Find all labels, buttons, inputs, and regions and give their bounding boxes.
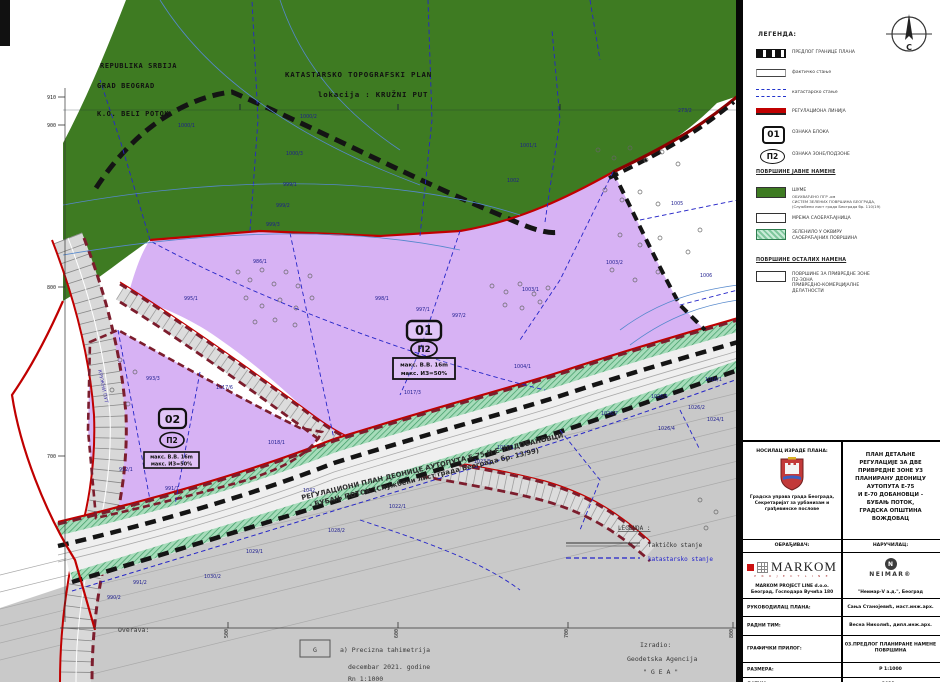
zone-02-max-height: макс. В.В. 16m — [150, 455, 193, 461]
legend-item-label: ШУМЕ — [792, 188, 806, 194]
plan-sheet: 910900800700500600700800 1000/11000/2100… — [0, 0, 940, 682]
lead-value: Сања Станојевић, маст.инж.арх. — [842, 604, 939, 610]
markom-name: MARKOM — [771, 559, 837, 575]
green-hatch-swatch — [756, 229, 786, 240]
title-block-row-scale: РАЗМЕРА: Р 1:1000 — [743, 663, 940, 678]
overava-label: Overava: — [118, 626, 149, 634]
road-network-swatch — [756, 213, 786, 223]
parcel-number: 1001/1 — [520, 143, 537, 149]
parcel-number: 990/2 — [107, 595, 121, 601]
legend-item-label: катастарско стање — [792, 90, 838, 96]
survey-note-line1: a) Precizna tahimetrija — [340, 646, 430, 654]
parcel-number: 991/2 — [133, 580, 147, 586]
parcel-number: 1006 — [700, 273, 712, 279]
sheet-divider — [736, 0, 743, 682]
neimar-address: "Неимар-V а.д.", Београд — [842, 590, 939, 596]
holder-name: Градска управа града Београда, Секретари… — [743, 495, 841, 513]
plan-header-line1: KATASTARSKO TOPOGRAFSKI PLAN — [285, 70, 432, 79]
title-block-row-holder: НОСИЛАЦ ИЗРАДЕ ПЛАНА: Градска управа гра… — [743, 442, 940, 540]
agency-line1: Geodetska Agencija — [627, 655, 698, 663]
izradio-label: Izradio: — [640, 641, 671, 649]
survey-note-line2: decembar 2021. godine — [348, 663, 430, 671]
parcel-number: 1026/7 — [601, 411, 618, 417]
legend-item-label: ОЗНАКА ЗОНЕ/ПОДЗОНЕ — [792, 152, 850, 158]
team-label: РАДНИ ТИМ: — [747, 624, 781, 629]
parcel-number: 1026/5 — [651, 394, 668, 400]
grid-label-left: 700 — [47, 454, 56, 460]
markom-subname: P R O J E C T L I N E — [743, 574, 841, 578]
zone-01-max-height: макс. В.В. 16m — [400, 363, 448, 369]
parcel-number: 997/1 — [416, 307, 430, 313]
drawing-label: ГРАФИЧКИ ПРИЛОГ: — [747, 647, 802, 652]
parcel-number: 1022/1 — [389, 504, 406, 510]
grid-label-bottom: 700 — [564, 629, 570, 638]
parcel-number: 1018/1 — [268, 440, 285, 446]
title-block-row-team: РАДНИ ТИМ: Весна Николић, дипл.инж.арх. — [743, 617, 940, 636]
grid-label-bottom: 500 — [224, 629, 230, 638]
zone-02-block: 02 — [165, 413, 180, 426]
forest-swatch — [756, 187, 786, 198]
parcel-number: 1003/2 — [606, 260, 623, 266]
legend-section-other: ПОВРШИНЕ ОСТАЛИХ НАМЕНА — [756, 258, 846, 263]
zone-01-max-coverage: макс. ИЗ=50% — [401, 371, 448, 377]
zone-02-subzone: П2 — [166, 436, 178, 445]
parcel-number: 1004/1 — [514, 364, 531, 370]
grid-label-left: 800 — [47, 285, 56, 291]
stamp-letter: G — [313, 646, 317, 654]
corner-header-line1: REPUBLIKA SRBIJA — [100, 62, 177, 70]
parcel-number: 1000/2 — [300, 114, 317, 120]
title-block-row-date: ДАТУМ: април 2023. године — [743, 678, 940, 682]
parcel-number: 991/1 — [165, 486, 179, 492]
parcel-number: 999/3 — [266, 222, 280, 228]
parcel-number: 1003/1 — [522, 287, 539, 293]
title-block-row-logos: MARKOM P R O J E C T L I N E MARKOM PROJ… — [743, 553, 940, 599]
parcel-number: 1026/4 — [658, 426, 675, 432]
mini-legend-title: LEGENDA : — [618, 525, 651, 532]
parcel-number: 1030/2 — [204, 574, 221, 580]
neimar-logo: N NEIMAR® — [842, 558, 939, 578]
parcel-number: 999/2 — [276, 203, 290, 209]
block-badge-swatch: 01 — [762, 126, 785, 144]
grid-label-bottom: 600 — [394, 629, 400, 638]
legend-section-public: ПОВРШИНЕ ЈАВНЕ НАМЕНЕ — [756, 170, 836, 175]
corner-header-line3: K.O. BELI POTOK — [97, 110, 169, 118]
zone-02-max-coverage: макс. ИЗ=50% — [151, 462, 192, 468]
legend-title: ЛЕГЕНДА: — [758, 31, 796, 38]
scan-corner-mark — [0, 0, 10, 46]
parcel-number: 1000/3 — [286, 151, 303, 157]
survey-note-line3: Rn 1:1000 — [348, 675, 383, 682]
title-block-row-lead: РУКОВОДИЛАЦ ПЛАНА: Сања Станојевић, маст… — [743, 599, 940, 617]
legend-item-label: ПРЕДЛОГ ГРАНИЦЕ ПЛАНА — [792, 50, 855, 56]
title-block-row-headers: ОБРАЂИВАЧ: НАРУЧИЛАЦ: — [743, 540, 940, 553]
cadastral-state-swatch — [756, 89, 786, 97]
markom-grid-icon — [757, 562, 768, 573]
p2-zone-swatch — [756, 271, 786, 282]
parcel-number: 1029/1 — [246, 549, 263, 555]
zone-01-block: 01 — [415, 324, 433, 339]
factual-state-swatch — [756, 69, 786, 77]
legend-item-label: фактичко стање — [792, 70, 831, 76]
plan-title: ПЛАН ДЕТАЉНЕ РЕГУЛАЦИЈЕ ЗА ДВЕ ПРИВРЕДНЕ… — [842, 442, 939, 533]
team-value: Весна Николић, дипл.инж.арх. — [842, 623, 939, 629]
north-letter: С — [906, 43, 912, 52]
neimar-name: NEIMAR® — [869, 571, 911, 578]
parcel-number: 999/1 — [283, 182, 297, 188]
drawing-value: 03.ПРЕДЛОГ ПЛАНИРАНЕ НАМЕНЕ ПОВРШИНА — [842, 643, 939, 656]
legend-item-block-badge: 01 ОЗНАКА БЛОКА — [743, 126, 940, 142]
parcel-number: 998/1 — [375, 296, 389, 302]
markom-square-icon — [747, 564, 754, 571]
holder-header: НОСИЛАЦ ИЗРАДЕ ПЛАНА: — [743, 449, 841, 454]
parcel-number: 995/1 — [184, 296, 198, 302]
parcel-number: 1000/1 — [178, 123, 195, 129]
scale-value: Р 1:1000 — [842, 667, 939, 673]
grid-label-left: 910 — [47, 95, 56, 101]
parcel-number: 1002 — [507, 178, 519, 184]
north-arrow-icon: С — [886, 10, 932, 62]
legend-panel: С ЛЕГЕНДА: ПРЕДЛОГ ГРАНИЦЕ ПЛАНА фактичк… — [743, 0, 940, 440]
parcel-number: 997/2 — [452, 313, 466, 319]
legend-item-label: ПОВРШИНЕ ЗА ПРИВРЕДНЕ ЗОНЕ П2-ЗОНА ПРИВР… — [792, 272, 870, 295]
neimar-circle-icon: N — [885, 558, 897, 570]
title-block: НОСИЛАЦ ИЗРАДЕ ПЛАНА: Градска управа гра… — [743, 440, 940, 682]
obradjivac-header: ОБРАЂИВАЧ: — [743, 543, 841, 548]
zone-badge-swatch: П2 — [760, 149, 785, 164]
parcel-number: 1024/1 — [707, 417, 724, 423]
scale-label: РАЗМЕРА: — [747, 668, 774, 673]
grid-label-bottom: 800 — [729, 629, 735, 638]
plan-map: 910900800700500600700800 1000/11000/2100… — [0, 0, 738, 682]
legend-item-zone-badge: П2 ОЗНАКА ЗОНЕ/ПОДЗОНЕ — [743, 149, 940, 163]
corner-header-line2: GRAD BEOGRAD — [97, 82, 155, 90]
parcel-number: 992/1 — [119, 467, 133, 473]
parcel-number: 273/2 — [678, 108, 692, 114]
parcel-number: 1028/2 — [328, 528, 345, 534]
plan-header-line2: lokacija : KRUŽNI PUT — [318, 90, 428, 99]
plan-boundary-swatch — [756, 49, 786, 58]
legend-item-label: РЕГУЛАЦИОНА ЛИНИЈА — [792, 109, 846, 115]
parcel-number: 1005 — [671, 201, 683, 207]
parcel-number: 1026/2 — [688, 405, 705, 411]
grid-label-left: 900 — [47, 123, 56, 129]
mini-legend-item1: faktičko stanje — [648, 542, 703, 549]
regulation-line-swatch — [756, 108, 786, 115]
title-block-row-drawing: ГРАФИЧКИ ПРИЛОГ: 03.ПРЕДЛОГ ПЛАНИРАНЕ НА… — [743, 636, 940, 663]
lead-label: РУКОВОДИЛАЦ ПЛАНА: — [747, 605, 811, 610]
parcel-number: 986/1 — [253, 259, 267, 265]
mini-legend-item2: katastarsko stanje — [648, 556, 713, 563]
legend-item-label: ЗЕЛЕНИЛО У ОКВИРУ САОБРАЋАЈНИХ ПОВРШИНА — [792, 230, 857, 241]
belgrade-coat-of-arms — [779, 457, 805, 491]
zone-01-subzone: П2 — [417, 345, 430, 355]
legend-item-subtext: ОБУХВАЋЕНО ПГР -ом СИСТЕМ ЗЕЛЕНИХ ПОВРШИ… — [792, 195, 881, 210]
parcel-number: 993/3 — [146, 376, 160, 382]
parcel-number: 1016/1 — [705, 377, 722, 383]
markom-address: MARKOM PROJECT LINE d.o.o. Београд, Госп… — [743, 584, 841, 596]
agency-line2: " G E A " — [643, 668, 678, 676]
legend-item-label: ОЗНАКА БЛОКА — [792, 130, 829, 136]
parcel-number: 1017/6 — [216, 385, 233, 391]
parcel-number: 1017/3 — [404, 390, 421, 396]
legend-item-label: МРЕЖА САОБРАЋАЈНИЦА — [792, 216, 851, 222]
markom-logo: MARKOM — [743, 559, 841, 575]
narucilac-header: НАРУЧИЛАЦ: — [842, 543, 939, 548]
